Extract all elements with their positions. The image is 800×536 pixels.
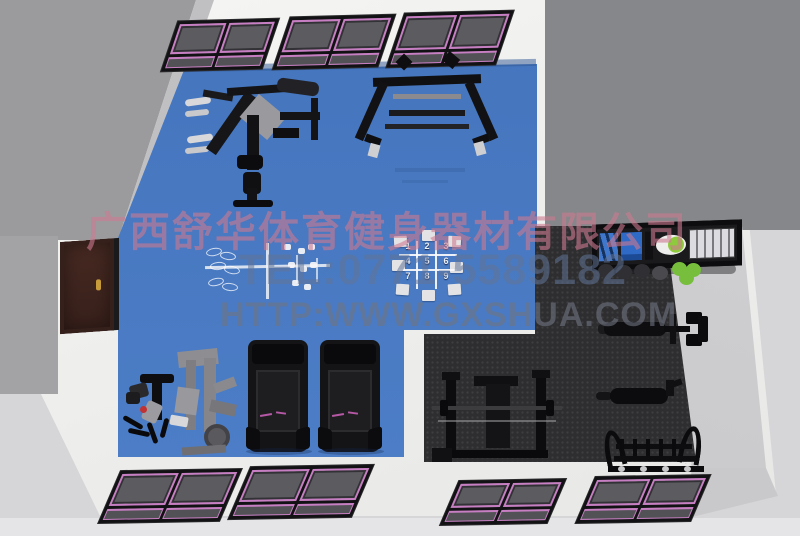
floor-marker (298, 248, 305, 254)
machine-arm (311, 98, 318, 140)
floor-marker (300, 266, 307, 272)
red-knob (140, 406, 147, 413)
floor-mat (448, 284, 462, 296)
bench-upright (670, 314, 676, 344)
rack-post (536, 376, 546, 452)
rack-post-cap (532, 370, 550, 378)
grid-number: 2 (420, 241, 434, 251)
window-group-top-2 (273, 15, 396, 70)
window-sill (103, 508, 164, 520)
rack-base (452, 450, 548, 458)
white-mat (169, 415, 188, 428)
entrance-door (60, 238, 119, 334)
hopscotch-grid: 1 2 3 4 5 6 7 8 9 (392, 228, 466, 300)
window-sill (444, 510, 498, 522)
blue-box (621, 232, 642, 261)
gym-arm (213, 377, 237, 394)
gym-ball (668, 236, 684, 253)
window-pane (395, 15, 456, 50)
storage-rack (592, 219, 742, 270)
gym-column (204, 358, 216, 432)
window-sill (162, 507, 223, 519)
floor-marker (292, 280, 299, 286)
rack-pad (473, 141, 486, 156)
rack-crossbar (389, 110, 465, 116)
marking-tick (296, 255, 298, 283)
grid-number: 1 (401, 241, 415, 251)
bar-collar (640, 466, 647, 472)
window-pane (170, 23, 226, 54)
dumbbell-rack (604, 426, 710, 476)
weight-bench-2 (596, 380, 690, 412)
window-group-bottom-left-2 (228, 465, 373, 519)
gym-seat (174, 387, 199, 416)
multi-station-machine (185, 80, 319, 208)
machine-head (126, 392, 140, 404)
rack-crossbar (393, 94, 461, 99)
bench-pad (604, 322, 666, 336)
handle-bar (185, 109, 209, 117)
rack-rail (614, 456, 696, 461)
power-rack-frame (365, 72, 491, 160)
treadmill-2 (320, 340, 380, 452)
bar-collar (618, 466, 625, 472)
marking-line-v (266, 243, 269, 299)
marking-squiggle (220, 251, 237, 261)
grid-number: 4 (401, 256, 415, 266)
machine-foot-bar (233, 200, 273, 207)
barbell-2 (438, 420, 556, 422)
machine-leg (159, 418, 169, 439)
rack-crossbar (385, 124, 469, 129)
floor-marker (284, 244, 291, 250)
floor-marker (304, 284, 311, 290)
window-sill (233, 504, 295, 516)
floor-marker (308, 244, 315, 250)
weight-plate (698, 316, 708, 342)
handle-bar (185, 96, 212, 107)
medicine-ball (616, 265, 632, 279)
gym-ball-tray (656, 234, 687, 255)
window-sill (496, 509, 550, 521)
medicine-ball (598, 264, 614, 278)
floor-mat (422, 290, 435, 301)
exterior-ground-left (0, 236, 58, 394)
window-pane (109, 473, 179, 506)
bench-pad (610, 388, 668, 404)
grid-number: 9 (439, 271, 453, 281)
rack-shadow (395, 168, 465, 172)
grid-number: 8 (420, 271, 434, 281)
blue-mats (599, 233, 618, 262)
window-group-top-1 (161, 19, 279, 72)
window-group-bottom-right-1 (440, 479, 566, 525)
machine-leg (128, 428, 151, 437)
window-group-bottom-left-1 (98, 469, 241, 523)
medicine-ball (652, 266, 668, 280)
treadmill-belt (256, 370, 300, 432)
floor-marker (288, 262, 295, 268)
window-sill (293, 503, 355, 515)
treadmill-hood (324, 344, 376, 364)
door-handle (96, 279, 101, 290)
grid-number: 7 (401, 271, 415, 281)
treadmill-1 (248, 340, 308, 452)
medicine-ball-green (679, 271, 694, 285)
rack-shadow (402, 180, 448, 183)
weight-stack (273, 128, 299, 138)
treadmill-hood (252, 344, 304, 364)
floor-mat (396, 284, 410, 296)
machine-seat (237, 155, 263, 169)
floor-mat (422, 230, 435, 241)
weight-bench-1 (598, 308, 710, 352)
barbell-plate (546, 400, 554, 416)
window-pane (219, 22, 275, 53)
medicine-ball (634, 264, 650, 278)
grid-line (435, 241, 437, 289)
machine-canopy (276, 77, 320, 97)
window-pane (332, 18, 391, 51)
smith-machine (432, 370, 564, 466)
rack-steps (432, 448, 452, 462)
window-group-bottom-right-2 (576, 475, 711, 523)
rack-post-cap (442, 372, 460, 380)
window-sill (580, 508, 638, 520)
window-pane (502, 482, 561, 507)
foam-rollers (689, 228, 735, 260)
gym-base (182, 444, 226, 455)
floor-shadow (318, 448, 384, 455)
window-pane (450, 483, 509, 508)
court-marking-cross (195, 238, 345, 308)
rack-column (486, 384, 510, 448)
window-pane (282, 19, 341, 52)
treadmill-belt (328, 370, 372, 432)
home-gym-machine (170, 350, 244, 460)
window-sill (328, 53, 380, 65)
window-pane (239, 469, 310, 502)
window-sill (277, 54, 329, 66)
marking-squiggle (222, 282, 239, 292)
exterior-ground-top-right (545, 0, 800, 230)
window-pane (448, 14, 509, 49)
window-sill (636, 507, 694, 519)
bench-axle (664, 326, 690, 332)
rack-pad (367, 143, 380, 158)
barbell-plate (440, 400, 448, 416)
grid-line (416, 241, 418, 289)
window-pane (642, 478, 706, 505)
grid-number: 5 (420, 256, 434, 266)
grid-number: 3 (439, 241, 453, 251)
window-pane (168, 472, 238, 505)
grid-number: 6 (439, 256, 453, 266)
rack-gap (645, 232, 653, 260)
floor-shadow (246, 448, 312, 455)
bar-collar (662, 466, 669, 472)
window-sill (214, 55, 264, 67)
window-pane (586, 479, 650, 506)
barbell (432, 406, 562, 410)
floor-marker (310, 262, 317, 268)
bar-collar (684, 466, 691, 472)
window-sill (165, 56, 215, 68)
gym-floorplan-render: 1 2 3 4 5 6 7 8 9 (0, 0, 800, 536)
window-pane (299, 468, 370, 501)
